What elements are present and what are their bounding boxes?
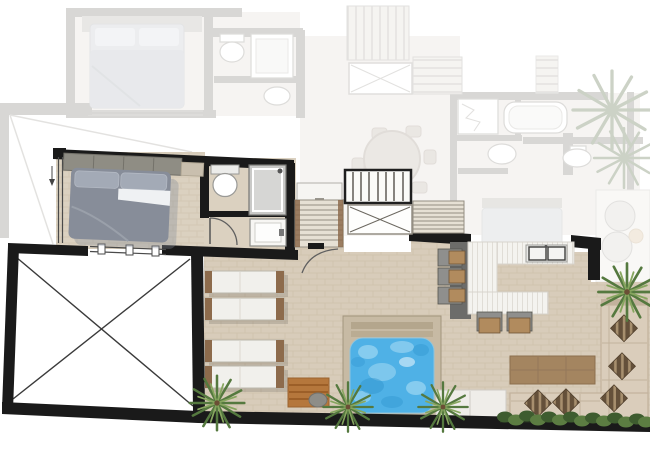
wooden-table (510, 356, 595, 384)
basin-tap (279, 229, 284, 236)
wall-kitchen-corner-v (588, 238, 600, 280)
washbasin-cabinet (250, 219, 286, 246)
faded-bed-2 (482, 198, 562, 246)
shower-head (278, 169, 283, 174)
faded-double-bed (82, 16, 202, 108)
sun-lounger-1 (205, 271, 288, 297)
double-sink (526, 245, 567, 262)
bar-stool-4 (477, 312, 502, 333)
floor-plan-canvas (0, 0, 650, 450)
double-bed (68, 168, 179, 250)
bar-stool-5 (507, 312, 532, 333)
sun-lounger-2 (205, 298, 288, 324)
pool-step-1 (351, 322, 433, 329)
counter-bottom-bar (468, 292, 548, 314)
stone (309, 393, 327, 407)
pergola-deck (345, 170, 411, 203)
pillow-left (75, 171, 120, 189)
wall-void-right (191, 251, 205, 412)
floor-plan-drawing (0, 0, 650, 450)
crossed-void-room (6, 250, 199, 412)
sun-lounger-3 (205, 340, 288, 366)
toilet (213, 174, 237, 197)
bar-stool-2 (438, 268, 465, 285)
pillow-right (120, 173, 167, 191)
bar-stool-1 (438, 249, 465, 266)
skylight-void (348, 205, 412, 234)
entry-arrow (49, 166, 55, 186)
staircase-upper-flight (413, 201, 464, 233)
pool-step-2 (351, 331, 433, 337)
bar-stool-3 (438, 287, 465, 304)
toilet-cistern (211, 165, 239, 174)
shelf (181, 162, 204, 176)
shower (249, 165, 286, 215)
staircase-lower-flight (295, 200, 343, 249)
